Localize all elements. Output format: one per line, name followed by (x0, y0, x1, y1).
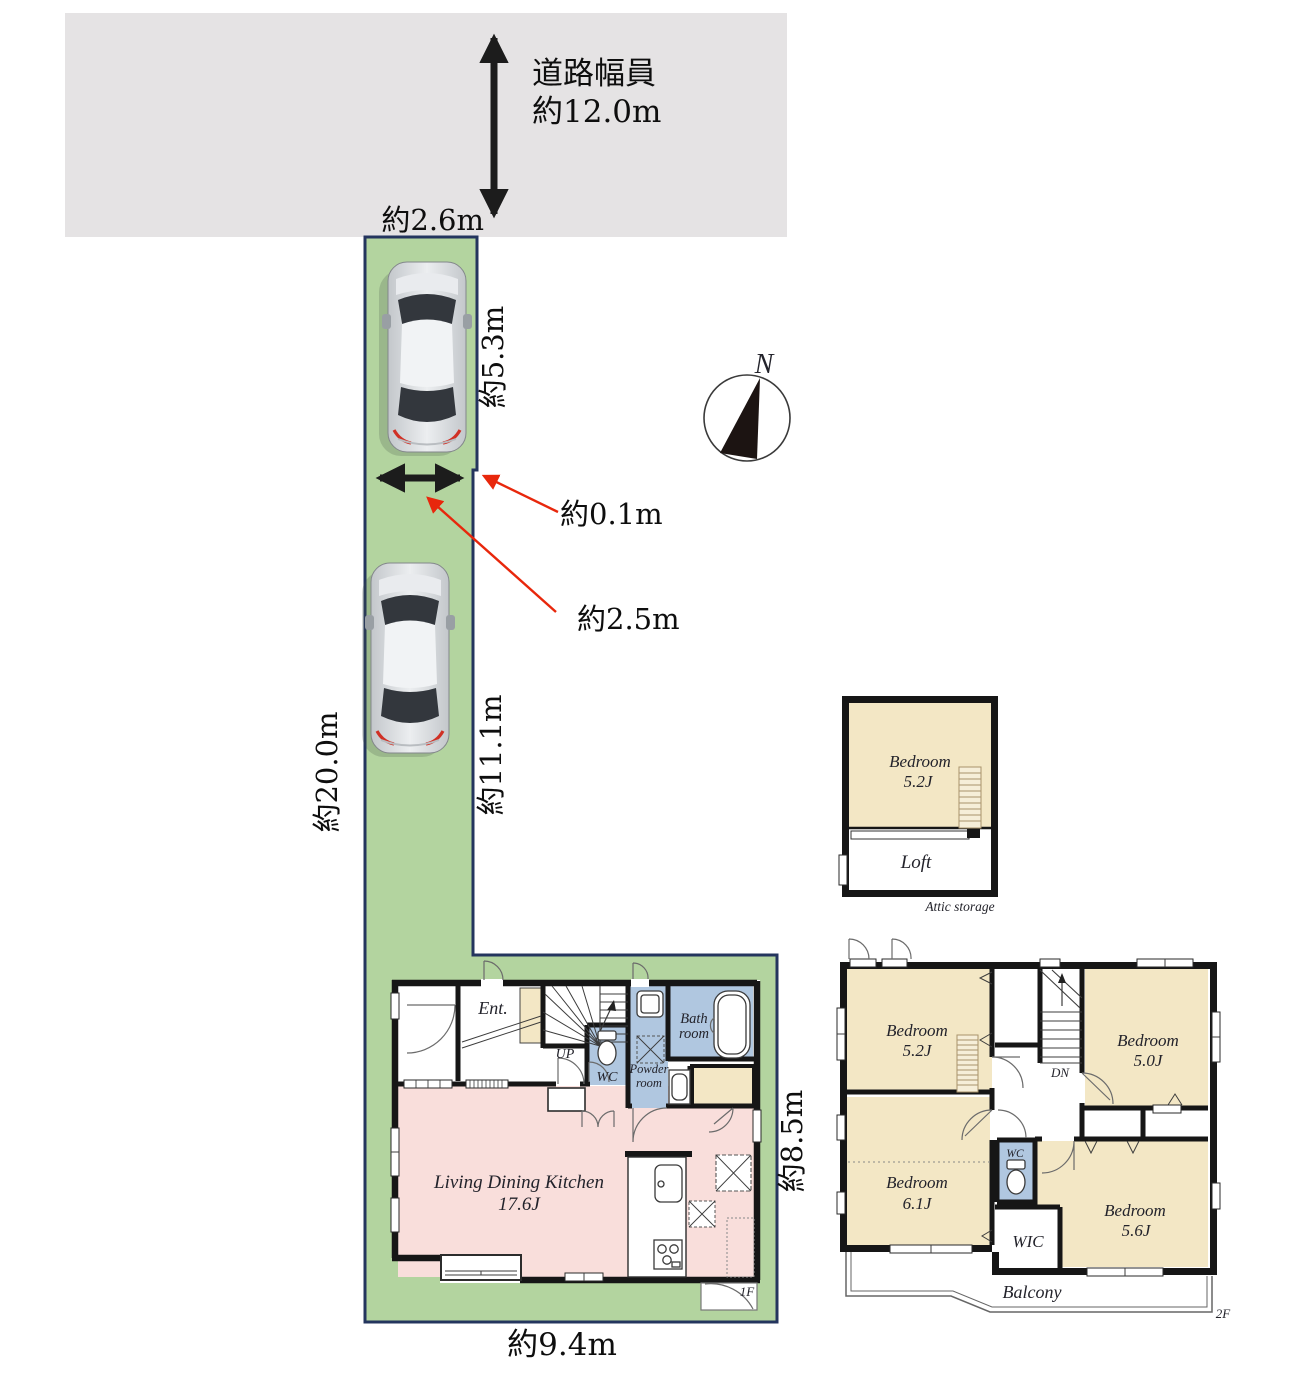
parking-width-label: 約2.5m (577, 602, 680, 636)
dn-label: DN (1050, 1065, 1070, 1080)
first-floor-plan: Ent. UP WC Powder room Bath room Living … (391, 961, 761, 1310)
toilet-1f-icon (598, 1031, 616, 1065)
frontage-label: 約2.6m (381, 203, 484, 237)
ldk-label-2: 17.6J (498, 1194, 541, 1215)
kitchen-counter (625, 1154, 692, 1277)
loft-bedroom-label: Bedroom (889, 752, 951, 771)
wc-2f-label: WC (1006, 1148, 1024, 1160)
ent-label: Ent. (477, 998, 508, 1018)
room-storage-1f (692, 1066, 754, 1106)
total-depth-label: 約20.0m (310, 711, 344, 832)
attic-storage-caption: Attic storage (924, 899, 994, 914)
site-and-floorplan-diagram: 道路幅員 約12.0m 約2.6m 約0.1m 約2.5m 約5.3m 約20.… (0, 0, 1292, 1378)
up-label: UP (556, 1047, 575, 1062)
floor-tag-1f: 1F (740, 1284, 756, 1299)
wic-label: WIC (1012, 1232, 1044, 1251)
road-width-label: 道路幅員 (532, 56, 656, 92)
compass-icon: N (704, 349, 790, 461)
step-pointer-arrow (484, 476, 558, 512)
loft-window (839, 855, 847, 885)
room-bedroom-61 (846, 1097, 990, 1245)
shoe-cabinet (520, 988, 541, 1043)
ladder-2f-icon (957, 1035, 978, 1092)
toilet-2f-icon (1007, 1160, 1025, 1194)
upper-depth-label: 約5.3m (476, 306, 510, 409)
wc-1f-label: WC (597, 1070, 619, 1085)
bedroom61-label: Bedroom (886, 1173, 948, 1192)
bedroom50-label: Bedroom (1117, 1031, 1179, 1050)
bedroom61-size: 6.1J (903, 1194, 933, 1213)
building-depth-label: 約8.5m (775, 1090, 809, 1193)
loft-floor-plan: Bedroom 5.2J Loft Attic storage (839, 696, 998, 914)
bedroom50-size: 5.0J (1134, 1051, 1164, 1070)
powder-label-1: Powder (629, 1062, 669, 1076)
compass-n-label: N (754, 349, 775, 380)
building-width-label: 約9.4m (507, 1327, 617, 1363)
car-icon-top (379, 262, 472, 456)
bath-label-2: room (679, 1026, 709, 1042)
second-floor-plan: Bedroom 5.2J Bedroom 5.0J Bedroom 6.1J B… (837, 939, 1231, 1321)
bedroom56-label: Bedroom (1104, 1201, 1166, 1220)
washer-icon (669, 1070, 690, 1104)
loft-bedroom-size: 5.2J (904, 772, 934, 791)
balcony-label: Balcony (1003, 1282, 1062, 1302)
step-label: 約0.1m (560, 497, 663, 531)
powder-label-2: room (636, 1076, 662, 1090)
road-width-value: 約12.0m (532, 94, 661, 130)
loft-label: Loft (900, 852, 932, 873)
bedroom52-label: Bedroom (886, 1021, 948, 1040)
washstand-icon (637, 991, 663, 1017)
floor-tag-2f: 2F (1216, 1306, 1232, 1321)
car-icon-bottom (362, 563, 455, 757)
ldk-label-1: Living Dining Kitchen (433, 1172, 604, 1193)
bedroom52-size: 5.2J (903, 1041, 933, 1060)
bathtub-icon (710, 991, 750, 1058)
lower-depth-label: 約11.1m (474, 694, 508, 815)
bedroom56-size: 5.6J (1122, 1221, 1152, 1240)
bath-label-1: Bath (680, 1011, 707, 1027)
loft-ladder-icon (959, 767, 981, 828)
